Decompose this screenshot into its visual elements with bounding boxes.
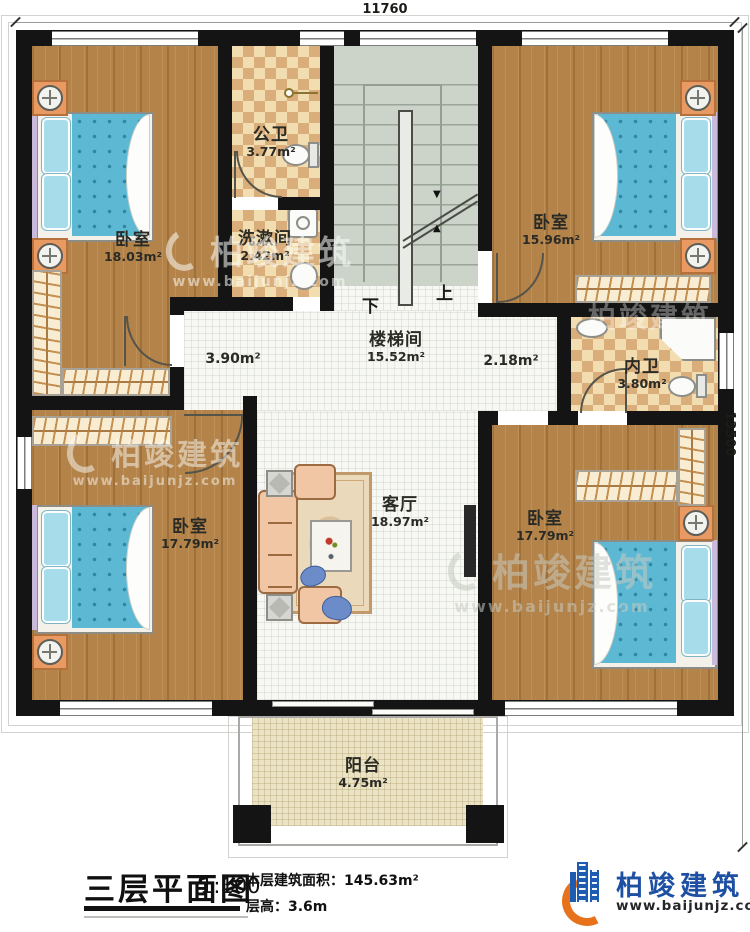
inner-bath-sink <box>576 318 608 338</box>
floor-plan-page: ▼ ▲ <box>0 0 750 932</box>
wall-v7-inner-bath <box>557 317 571 411</box>
side-table-lamp <box>269 473 290 494</box>
room-label-bedroom-tl: 卧室 18.03m² <box>104 231 162 264</box>
bed-bottom-right-pillow-1 <box>682 546 710 602</box>
bed-top-left-pillow-2 <box>42 174 70 230</box>
room-label-living: 客厅 18.97m² <box>371 496 429 529</box>
wardrobe-tl-vertical <box>32 270 62 396</box>
sliding-door-panel-1 <box>272 701 374 707</box>
wardrobe-br-horizontal <box>575 470 678 502</box>
room-name: 内卫 <box>617 358 666 376</box>
window-right-bath <box>719 333 734 389</box>
brand-logo-icon <box>560 858 610 920</box>
room-label-washroom: 洗漱间 2.42m² <box>238 230 292 263</box>
room-area: 3.80m² <box>617 376 666 391</box>
title-underline-thin <box>84 916 248 918</box>
side-table-top <box>266 470 293 497</box>
room-name: 客厅 <box>371 496 429 514</box>
room-area: 17.79m² <box>516 528 574 543</box>
balcony-column-left <box>233 805 271 843</box>
wall-v6 <box>478 411 492 700</box>
armchair-top <box>294 464 336 500</box>
bed-top-right-pillow-1 <box>682 118 710 174</box>
wall-v5 <box>243 396 257 700</box>
room-area: 18.97m² <box>371 514 429 529</box>
room-area: 2.18m² <box>483 354 538 369</box>
stair-well-line-right <box>440 84 442 282</box>
room-label-bedroom-tr: 卧室 15.96m² <box>522 214 580 247</box>
room-name: 楼梯间 <box>367 331 425 349</box>
dimension-right-value: 13500 <box>722 404 737 464</box>
wardrobe-tl-horizontal <box>62 368 170 396</box>
lamp-icon <box>683 510 709 536</box>
floor-area-text: 本层建筑面积：145.63m² <box>246 870 419 890</box>
wall-h-tr-bottom <box>478 303 718 317</box>
dimension-top-value: 11760 <box>340 2 430 17</box>
window-top-washroom <box>300 31 344 46</box>
nightstand-tr-bottom <box>680 238 716 274</box>
coffee-table <box>310 520 352 572</box>
washroom-sink <box>290 262 318 290</box>
stair-well-line-top <box>363 84 441 86</box>
window-left <box>17 437 32 489</box>
stair-cut-arrow-top: ▼ <box>433 190 441 200</box>
bed-top-right-headboard <box>712 112 717 238</box>
bed-top-left-headboard <box>32 112 37 238</box>
room-name: 阳台 <box>338 757 387 775</box>
room-name: 卧室 <box>522 214 580 232</box>
hall-right-area-label: 2.18m² <box>483 354 538 369</box>
room-area: 2.42m² <box>238 248 292 263</box>
lamp-icon <box>685 243 711 269</box>
wall-exterior-left <box>16 30 32 716</box>
stair-up-label: 上 <box>436 279 453 304</box>
wall-v1 <box>218 46 232 311</box>
room-area: 15.96m² <box>522 232 580 247</box>
bed-bottom-right-headboard <box>712 540 717 665</box>
wall-v3 <box>478 46 492 251</box>
bed-bottom-left-pillow-2 <box>42 567 70 623</box>
room-name: 卧室 <box>161 518 219 536</box>
room-label-inner-bath: 内卫 3.80m² <box>617 358 666 391</box>
room-area: 17.79m² <box>161 536 219 551</box>
room-name: 卧室 <box>104 231 162 249</box>
stair-railing <box>398 110 413 306</box>
wardrobe-tr <box>575 275 711 303</box>
shower-hose <box>294 92 318 94</box>
sofa-cushion-lines <box>268 492 292 588</box>
brand-url: www.baijunjz.com <box>616 898 750 914</box>
lamp-icon <box>37 243 63 269</box>
dimension-top-line <box>15 22 735 23</box>
logo-tower-1 <box>577 862 588 902</box>
wall-h-br-top-1 <box>492 411 498 425</box>
title-underline-thick <box>84 906 240 911</box>
wall-v4-bottom <box>170 367 184 410</box>
room-label-stairwell: 楼梯间 15.52m² <box>367 331 425 364</box>
bed-bottom-right-pillow-2 <box>682 600 710 656</box>
lamp-icon <box>37 639 63 665</box>
wall-h-br-top-2 <box>548 411 578 425</box>
wall-h-washroom-bottom <box>170 297 293 311</box>
room-area: 15.52m² <box>367 349 425 364</box>
toilet-tank-inner <box>696 374 707 398</box>
balcony-column-right <box>466 805 504 843</box>
room-name: 卧室 <box>516 510 574 528</box>
window-bottom-right <box>505 701 677 716</box>
room-label-bedroom-br: 卧室 17.79m² <box>516 510 574 543</box>
window-top-right <box>522 31 668 46</box>
nightstand-br <box>678 505 714 541</box>
nightstand-tl-bottom <box>32 238 68 274</box>
washing-machine-door <box>296 216 310 230</box>
side-table-bottom <box>266 594 293 621</box>
wardrobe-br-vertical <box>678 428 706 506</box>
lamp-icon <box>37 85 63 111</box>
room-name: 公卫 <box>246 126 295 144</box>
room-name: 洗漱间 <box>238 230 292 248</box>
room-area: 3.77m² <box>246 144 295 159</box>
stair-down-label: 下 <box>362 292 379 317</box>
stair-well-line-left <box>363 84 365 282</box>
hall-left-area-label: 3.90m² <box>205 352 260 367</box>
shower-head-icon <box>284 88 294 98</box>
nightstand-bl <box>32 634 68 670</box>
bed-top-right-pillow-2 <box>682 174 710 230</box>
room-area: 4.75m² <box>338 775 387 790</box>
window-top-left <box>52 31 198 46</box>
side-table-lamp <box>269 597 290 618</box>
floor-area-value: 145.63m² <box>344 873 419 889</box>
window-top-stairwell <box>360 31 476 46</box>
toilet-bowl-inner <box>668 376 696 397</box>
wall-v2 <box>320 46 334 311</box>
dimension-right-line <box>742 28 743 848</box>
room-label-balcony: 阳台 4.75m² <box>338 757 387 790</box>
floor-height-label: 层高： <box>246 899 288 915</box>
logo-tower-2 <box>590 870 599 902</box>
nightstand-tr-top <box>680 80 716 116</box>
sliding-door-panel-2 <box>372 709 474 715</box>
bed-bottom-left-headboard <box>32 505 37 630</box>
bed-top-left-pillow-1 <box>42 118 70 174</box>
nightstand-tl-top <box>32 80 68 116</box>
wall-h-bath-divider <box>278 197 320 210</box>
wall-h-br-top-3 <box>627 411 718 425</box>
wall-v4-top <box>170 297 184 315</box>
room-label-public-bath: 公卫 3.77m² <box>246 126 295 159</box>
bed-bottom-left-pillow-1 <box>42 511 70 567</box>
floor-height-text: 层高：3.6m <box>246 896 327 916</box>
room-label-bedroom-bl: 卧室 17.79m² <box>161 518 219 551</box>
wall-h-bl-top <box>32 396 170 410</box>
logo-tower-3 <box>570 872 576 902</box>
floor-area-label: 本层建筑面积： <box>246 873 344 889</box>
window-bottom-left <box>60 701 212 716</box>
lamp-icon <box>685 85 711 111</box>
tv-screen <box>464 505 476 577</box>
floor-height-value: 3.6m <box>288 899 327 915</box>
room-area: 3.90m² <box>205 352 260 367</box>
stair-cut-arrow-bottom: ▲ <box>433 224 441 234</box>
wardrobe-bl <box>32 416 172 446</box>
room-area: 18.03m² <box>104 249 162 264</box>
